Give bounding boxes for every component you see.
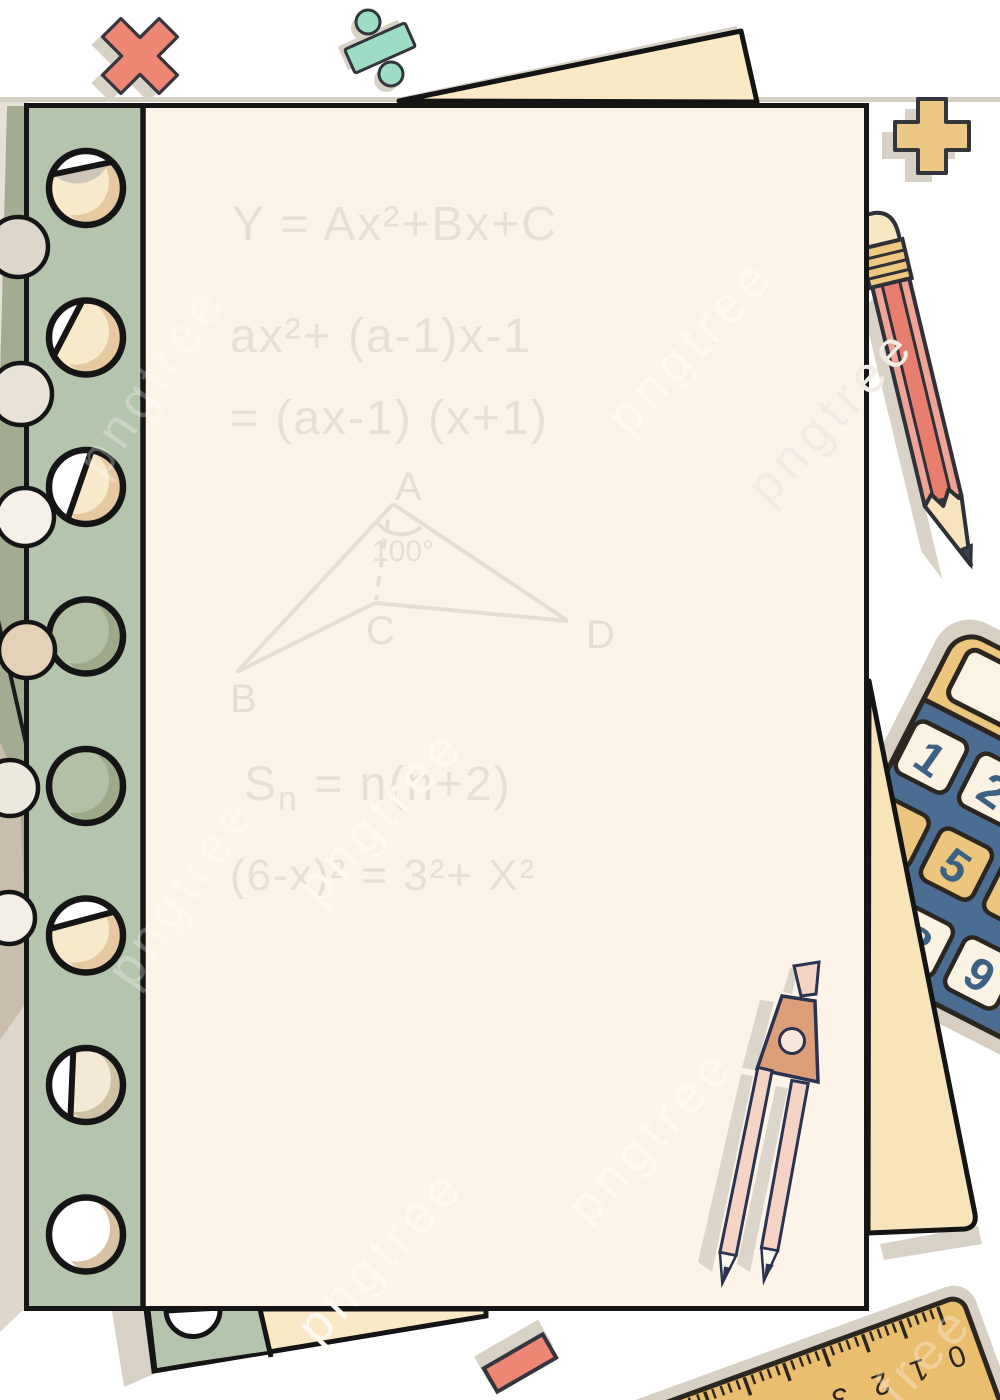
svg-text:A: A [395,465,422,509]
svg-text:D: D [586,613,615,657]
svg-text:B: B [230,677,257,721]
svg-text:100°: 100° [372,535,434,568]
svg-text:@: @ [723,732,788,804]
svg-text:ax²+ (a-1)x-1: ax²+ (a-1)x-1 [230,310,532,363]
svg-text:C: C [366,609,395,653]
svg-text:(6-x)² = 3²+ X²: (6-x)² = 3²+ X² [230,851,536,900]
svg-text:= (ax-1) (x+1): = (ax-1) (x+1) [230,392,549,445]
svg-text:Y = Ax²+Bx+C: Y = Ax²+Bx+C [232,198,558,251]
svg-text:@: @ [478,472,543,544]
